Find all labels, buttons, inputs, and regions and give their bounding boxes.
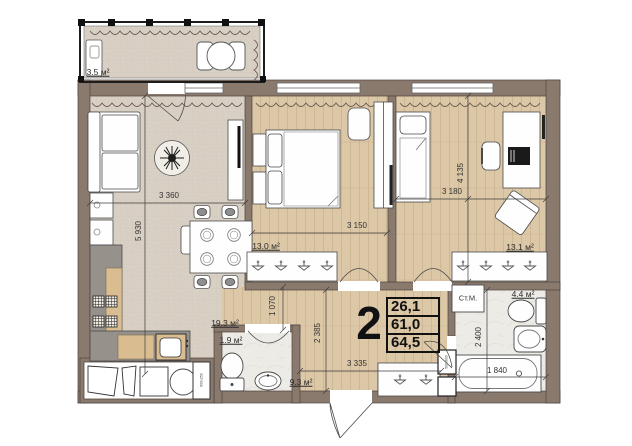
dining-chair [194, 276, 210, 289]
living-area-value: 26,1 [388, 299, 438, 317]
dim-hallway-width: 3 335 [347, 360, 367, 368]
dim-living-width: 3 360 [159, 192, 179, 200]
bedroom1-area-label: 13.0 м² [252, 242, 280, 251]
sofa-cushion-1 [102, 115, 138, 151]
pillow [400, 116, 426, 134]
shaft-bath-label: 500x600 [445, 355, 449, 368]
round-appliance [170, 369, 196, 395]
open-sash-2 [122, 366, 136, 396]
shelf-unit-1 [90, 193, 113, 218]
dim-bedroom2-width: 3 180 [442, 188, 462, 196]
office-chair [482, 142, 500, 170]
entrance-opening [330, 390, 372, 404]
cutting-board [118, 335, 154, 359]
balcony-table [207, 42, 235, 70]
pillow-2 [268, 171, 282, 204]
window-living [185, 83, 223, 93]
dim-bedroom2-length: 4 135 [457, 163, 465, 183]
bedroom1-door-opening [338, 281, 380, 291]
dim-bathroom-length: 2 400 [475, 327, 483, 347]
wall-right [546, 80, 560, 403]
dim-bedroom1-width: 3 150 [347, 222, 367, 230]
room-count-badge: 2 [356, 296, 380, 350]
toilet-bowl [508, 300, 534, 322]
tv [238, 126, 241, 168]
kitchen-living-area-label: 19.3 м² [211, 319, 239, 328]
dining-table [190, 221, 252, 273]
shelf-unit-2 [90, 220, 113, 245]
sofa-back [88, 112, 100, 192]
dining-chair [194, 206, 210, 219]
dining-chair [222, 276, 238, 289]
sofa-cushion-2 [102, 153, 138, 189]
wall-wc-right [292, 325, 300, 403]
wc-area-label: 1.9 м² [220, 336, 243, 345]
shaft-box-2 [438, 377, 456, 396]
window-bedroom2 [412, 83, 493, 93]
pouf [348, 108, 370, 140]
pillow-1 [268, 134, 282, 167]
window-bedroom1 [277, 83, 360, 93]
bedroom2-door-opening [413, 281, 452, 291]
area-summary-table: 26,1 61,0 64,5 [386, 297, 440, 353]
floor-plan: 3.5 м² 19.3 м² 13.0 м² 13.1 м² 1.9 м² 9.… [0, 0, 632, 446]
sash-3 [140, 367, 168, 396]
tv-stand [228, 120, 243, 200]
toilet-tank [536, 298, 546, 324]
shaft-kitchen-label: 600x250 [200, 373, 204, 386]
dim-living-length: 5 930 [135, 221, 143, 241]
apartment-area-value: 61,0 [388, 317, 438, 335]
washing-machine-label: Ст.М. [459, 294, 477, 302]
balcony-area-label: 3.5 м² [87, 68, 110, 77]
nightstand-2 [253, 172, 266, 204]
bathroom-area-label: 4.4 м² [512, 290, 535, 299]
total-area-value: 64,5 [388, 335, 438, 351]
hallway-area-label: 9.3 м² [290, 378, 313, 387]
dining-chair [222, 206, 238, 219]
nightstand-1 [253, 134, 266, 166]
bedroom2-area-label: 13.1 м² [506, 243, 534, 252]
dim-passage-width: 1 070 [269, 296, 277, 316]
open-sash-1 [88, 366, 118, 396]
hall-wardrobe [378, 363, 440, 396]
sink-bowl [160, 338, 181, 357]
dim-hallway-length: 2 385 [314, 323, 322, 343]
entrance-door-swing [330, 403, 372, 438]
balcony-door-opening [148, 82, 185, 94]
kitchen-bay [84, 362, 210, 399]
dim-bathtub-length: 1 840 [487, 367, 507, 375]
wc-toilet-bowl [221, 353, 243, 379]
